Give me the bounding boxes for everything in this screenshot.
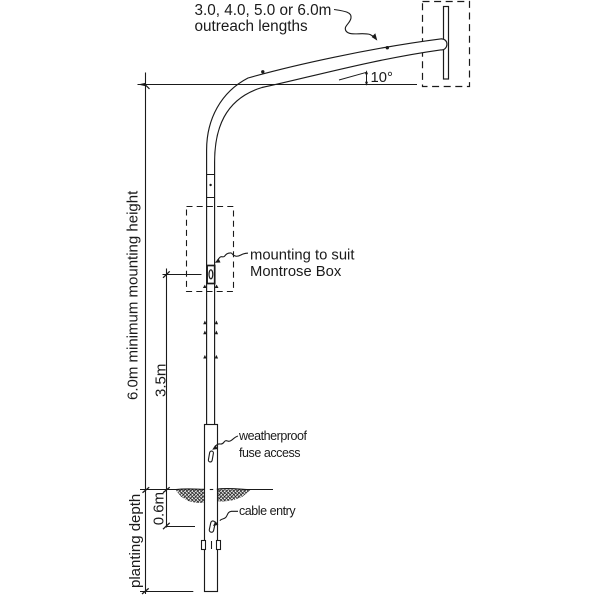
- svg-text:3.0, 4.0, 5.0 or 6.0m: 3.0, 4.0, 5.0 or 6.0m: [195, 2, 332, 19]
- svg-text:cable entry: cable entry: [239, 504, 296, 518]
- svg-text:0.6m: 0.6m: [151, 492, 168, 525]
- svg-text:weatherproof: weatherproof: [238, 429, 308, 443]
- svg-text:outreach lengths: outreach lengths: [195, 18, 308, 35]
- svg-text:mounting to suit: mounting to suit: [250, 248, 354, 264]
- svg-text:fuse access: fuse access: [239, 446, 300, 460]
- svg-text:planting depth: planting depth: [127, 494, 144, 588]
- svg-text:3.5m: 3.5m: [152, 364, 169, 397]
- svg-text:Montrose Box: Montrose Box: [250, 264, 342, 280]
- svg-text:6.0m minimum mounting height: 6.0m minimum mounting height: [125, 190, 142, 400]
- svg-text:10°: 10°: [371, 70, 393, 86]
